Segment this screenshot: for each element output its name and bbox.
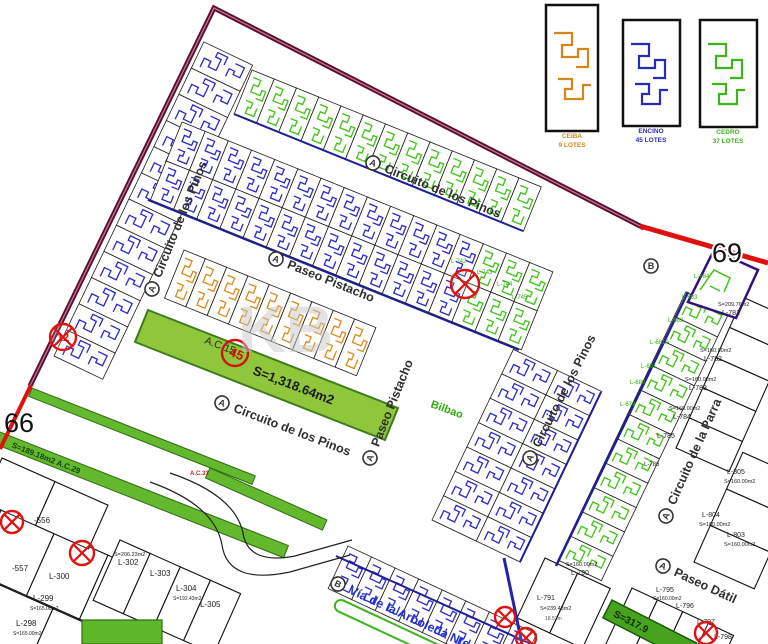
lot-label: L-304 [176, 584, 197, 593]
lot-label: S=165.00m2 [30, 606, 59, 612]
lot-label: S=209.76m2 [718, 302, 749, 308]
legend-ceiba-name: CEIBA [562, 133, 583, 140]
lot-label: S=160.00m2 [566, 562, 597, 568]
lot-label: L-683 [682, 295, 698, 301]
lot-label: A.C.31 [190, 471, 209, 477]
marker-number: 12 [57, 332, 69, 344]
lot-label: L-744 [497, 282, 513, 288]
lot-label: L-681 [641, 364, 657, 370]
boundary-red-right [640, 226, 768, 263]
lot-label: S=160.00m2 [699, 522, 730, 528]
lot-label: L-302 [118, 558, 139, 567]
legend-cedro-name: CEDRO [716, 129, 739, 136]
lot-label: L-796 [676, 603, 694, 610]
lot-label: S=160.00m2 [724, 542, 755, 548]
lot-label: L-684 [694, 274, 710, 280]
lot-label: L-803 [727, 532, 745, 539]
crossed-out-marker [70, 541, 94, 565]
legend: CEIBA 9 LOTES ENCINO 45 LOTES CEDRO 37 L… [546, 5, 757, 149]
lot-label: S=239.43m2 [540, 606, 571, 612]
crossed-out-marker [495, 607, 515, 627]
lot-label: L-804 [702, 512, 720, 519]
lot-label: L-680 [630, 380, 646, 386]
lot-label: S=160.00m2 [653, 596, 682, 602]
crossed-out-marker [451, 270, 479, 298]
lot-label: S=165.00m2 [13, 631, 42, 637]
lot-label: S=160.00m2 [685, 377, 716, 383]
lot-label: L-742 [451, 259, 467, 265]
green-rect-bottom-left [82, 620, 162, 644]
crossed-out-marker: 12 [50, 324, 76, 350]
lot-label: S=160.00m2 [700, 348, 731, 354]
lot-label: L-300 [49, 572, 70, 581]
lot-label: L-805 [727, 469, 745, 476]
legend-box-ceiba-frame [546, 5, 598, 131]
lot-label: L-682 [668, 318, 684, 324]
lot-label: L-681A [650, 340, 669, 346]
crossed-out-marker [695, 622, 717, 644]
marker-circle [516, 628, 536, 644]
lot-label: L-781 [722, 310, 740, 317]
corner-number-left: 66 [4, 408, 34, 438]
street-marker: B [644, 259, 658, 273]
legend-cedro-count: 37 LOTES [713, 138, 744, 145]
legend-box-cedro: CEDRO 37 LOTES [700, 20, 757, 145]
lot-label: -556 [34, 516, 51, 525]
lot-label: L-745 [512, 295, 528, 301]
lot-label: L-298 [16, 619, 37, 628]
lot-label: L-791 [537, 595, 555, 602]
lot-label: Bilbao [429, 399, 465, 422]
crossed-out-marker [516, 628, 536, 644]
lot-label: L-786 [644, 462, 660, 468]
legend-encino-count: 45 LOTES [636, 137, 667, 144]
lot-label: L-679 [620, 402, 636, 408]
lot-label: L-785 [657, 433, 675, 440]
lot-label: L-782 [704, 356, 722, 363]
lot-label: 18.53m [545, 616, 562, 622]
lot-label: L-790 [571, 570, 589, 577]
lot-label: S=192.43m2 [173, 596, 202, 602]
lot-label: L-795 [656, 587, 674, 594]
legend-encino-name: ENCINO [638, 128, 663, 135]
lot-label: L-305 [200, 600, 221, 609]
lot-label: S=160.00m2 [669, 406, 700, 412]
legend-box-encino-frame [623, 20, 680, 126]
lot-label: -557 [12, 564, 29, 573]
legend-ceiba-count: 9 LOTES [558, 142, 586, 149]
subdivision-plat-svg: A.C.15 45 S=1,318.64m2 S=189.18m2 A.C.29… [0, 0, 768, 644]
plat-map-canvas: A.C.15 45 S=1,318.64m2 S=189.18m2 A.C.29… [0, 0, 768, 644]
lot-label: L-299 [33, 594, 54, 603]
watermark: KB [238, 292, 333, 366]
legend-box-cedro-frame [700, 20, 757, 127]
legend-box-ceiba: CEIBA 9 LOTES [546, 5, 598, 149]
lot-label: L-303 [150, 569, 171, 578]
crossed-out-marker [1, 511, 23, 533]
lot-label: L-743 [477, 270, 493, 276]
legend-box-encino: ENCINO 45 LOTES [623, 20, 680, 144]
lot-label: S=160.00m2 [724, 479, 755, 485]
lot-label: L-783 [689, 385, 707, 392]
corner-number-right: 69 [712, 238, 742, 268]
street-marker-letter: B [648, 261, 655, 271]
lot-label: L-784 [673, 414, 691, 421]
